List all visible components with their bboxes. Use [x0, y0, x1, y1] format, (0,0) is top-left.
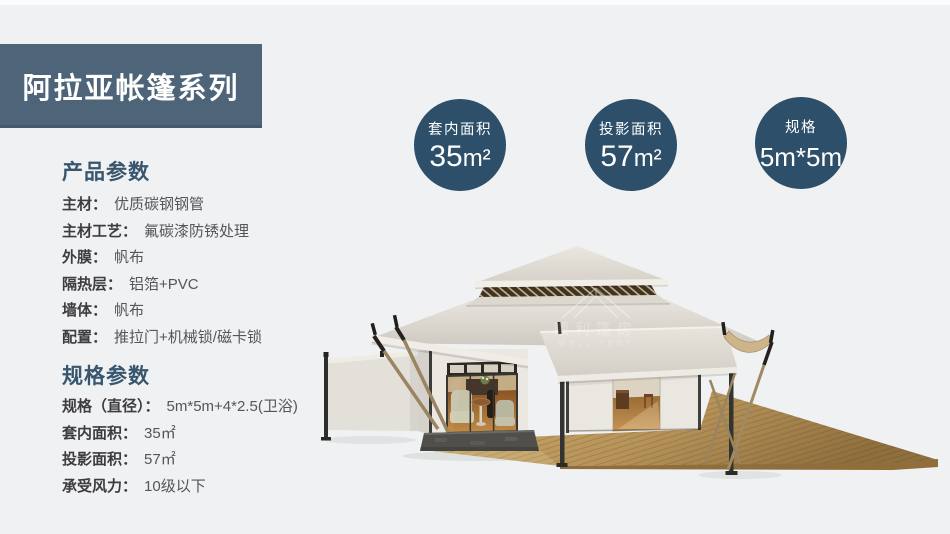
stat-value: 5m*5m [755, 142, 847, 173]
param-value: 优质碳钢钢管 [114, 196, 204, 213]
stat-circle-inner-area: 套内面积 35m² [414, 99, 506, 191]
series-banner: 阿拉亚帐篷系列 [0, 44, 262, 128]
stat-label: 套内面积 [414, 118, 506, 139]
series-title: 阿拉亚帐篷系列 [22, 65, 239, 107]
watermark-en: WELL TENT [558, 339, 634, 348]
param-value: 35㎡ [144, 425, 176, 442]
param-label: 外膜： [62, 249, 107, 266]
param-label: 承受风力： [62, 478, 137, 495]
watermark-cn: 顺利篷房 [554, 320, 638, 338]
param-label: 墙体： [62, 302, 107, 319]
param-label: 主材工艺： [62, 223, 137, 240]
param-label: 规格（直径）： [62, 398, 160, 415]
stat-circle-projected-area: 投影面积 57m² [585, 99, 677, 191]
param-value: 推拉门+机械锁/磁卡锁 [114, 329, 262, 346]
param-value: 铝箔+PVC [129, 276, 199, 293]
product-params-heading: 产品参数 [62, 156, 150, 186]
param-label: 套内面积： [62, 425, 137, 442]
interior-table [472, 399, 490, 406]
stat-circle-size: 规格 5m*5m [755, 97, 847, 189]
param-row: 主材：优质碳钢钢管 [62, 194, 392, 221]
param-label: 主材： [62, 196, 107, 213]
param-value: 5m*5m+4*2.5(卫浴) [167, 398, 298, 415]
stat-label: 投影面积 [585, 118, 677, 139]
param-value: 57㎡ [144, 451, 176, 468]
param-value: 氟碳漆防锈处理 [144, 223, 249, 240]
top-strip [0, 0, 950, 5]
param-value: 帆布 [114, 249, 144, 266]
cupola-roof [466, 246, 670, 307]
stone-base [420, 430, 539, 451]
tent-render: 顺利篷房 WELL TENT [320, 230, 950, 530]
stat-value: 35m² [414, 140, 506, 174]
param-label: 配置： [62, 329, 107, 346]
param-label: 投影面积： [62, 451, 137, 468]
param-label: 隔热层： [62, 276, 122, 293]
stat-value: 57m² [585, 140, 677, 174]
left-side-panel [321, 351, 418, 441]
stat-unit: m² [463, 145, 491, 172]
slide: 阿拉亚帐篷系列 产品参数 主材：优质碳钢钢管 主材工艺：氟碳漆防锈处理 外膜：帆… [0, 0, 950, 534]
stat-unit: m² [634, 145, 662, 172]
stat-label: 规格 [755, 116, 847, 137]
param-value: 帆布 [114, 302, 144, 319]
interior-plant [481, 376, 490, 385]
param-value: 10级以下 [144, 478, 206, 495]
interior-side-table [644, 394, 653, 397]
spec-params-heading: 规格参数 [62, 360, 150, 390]
